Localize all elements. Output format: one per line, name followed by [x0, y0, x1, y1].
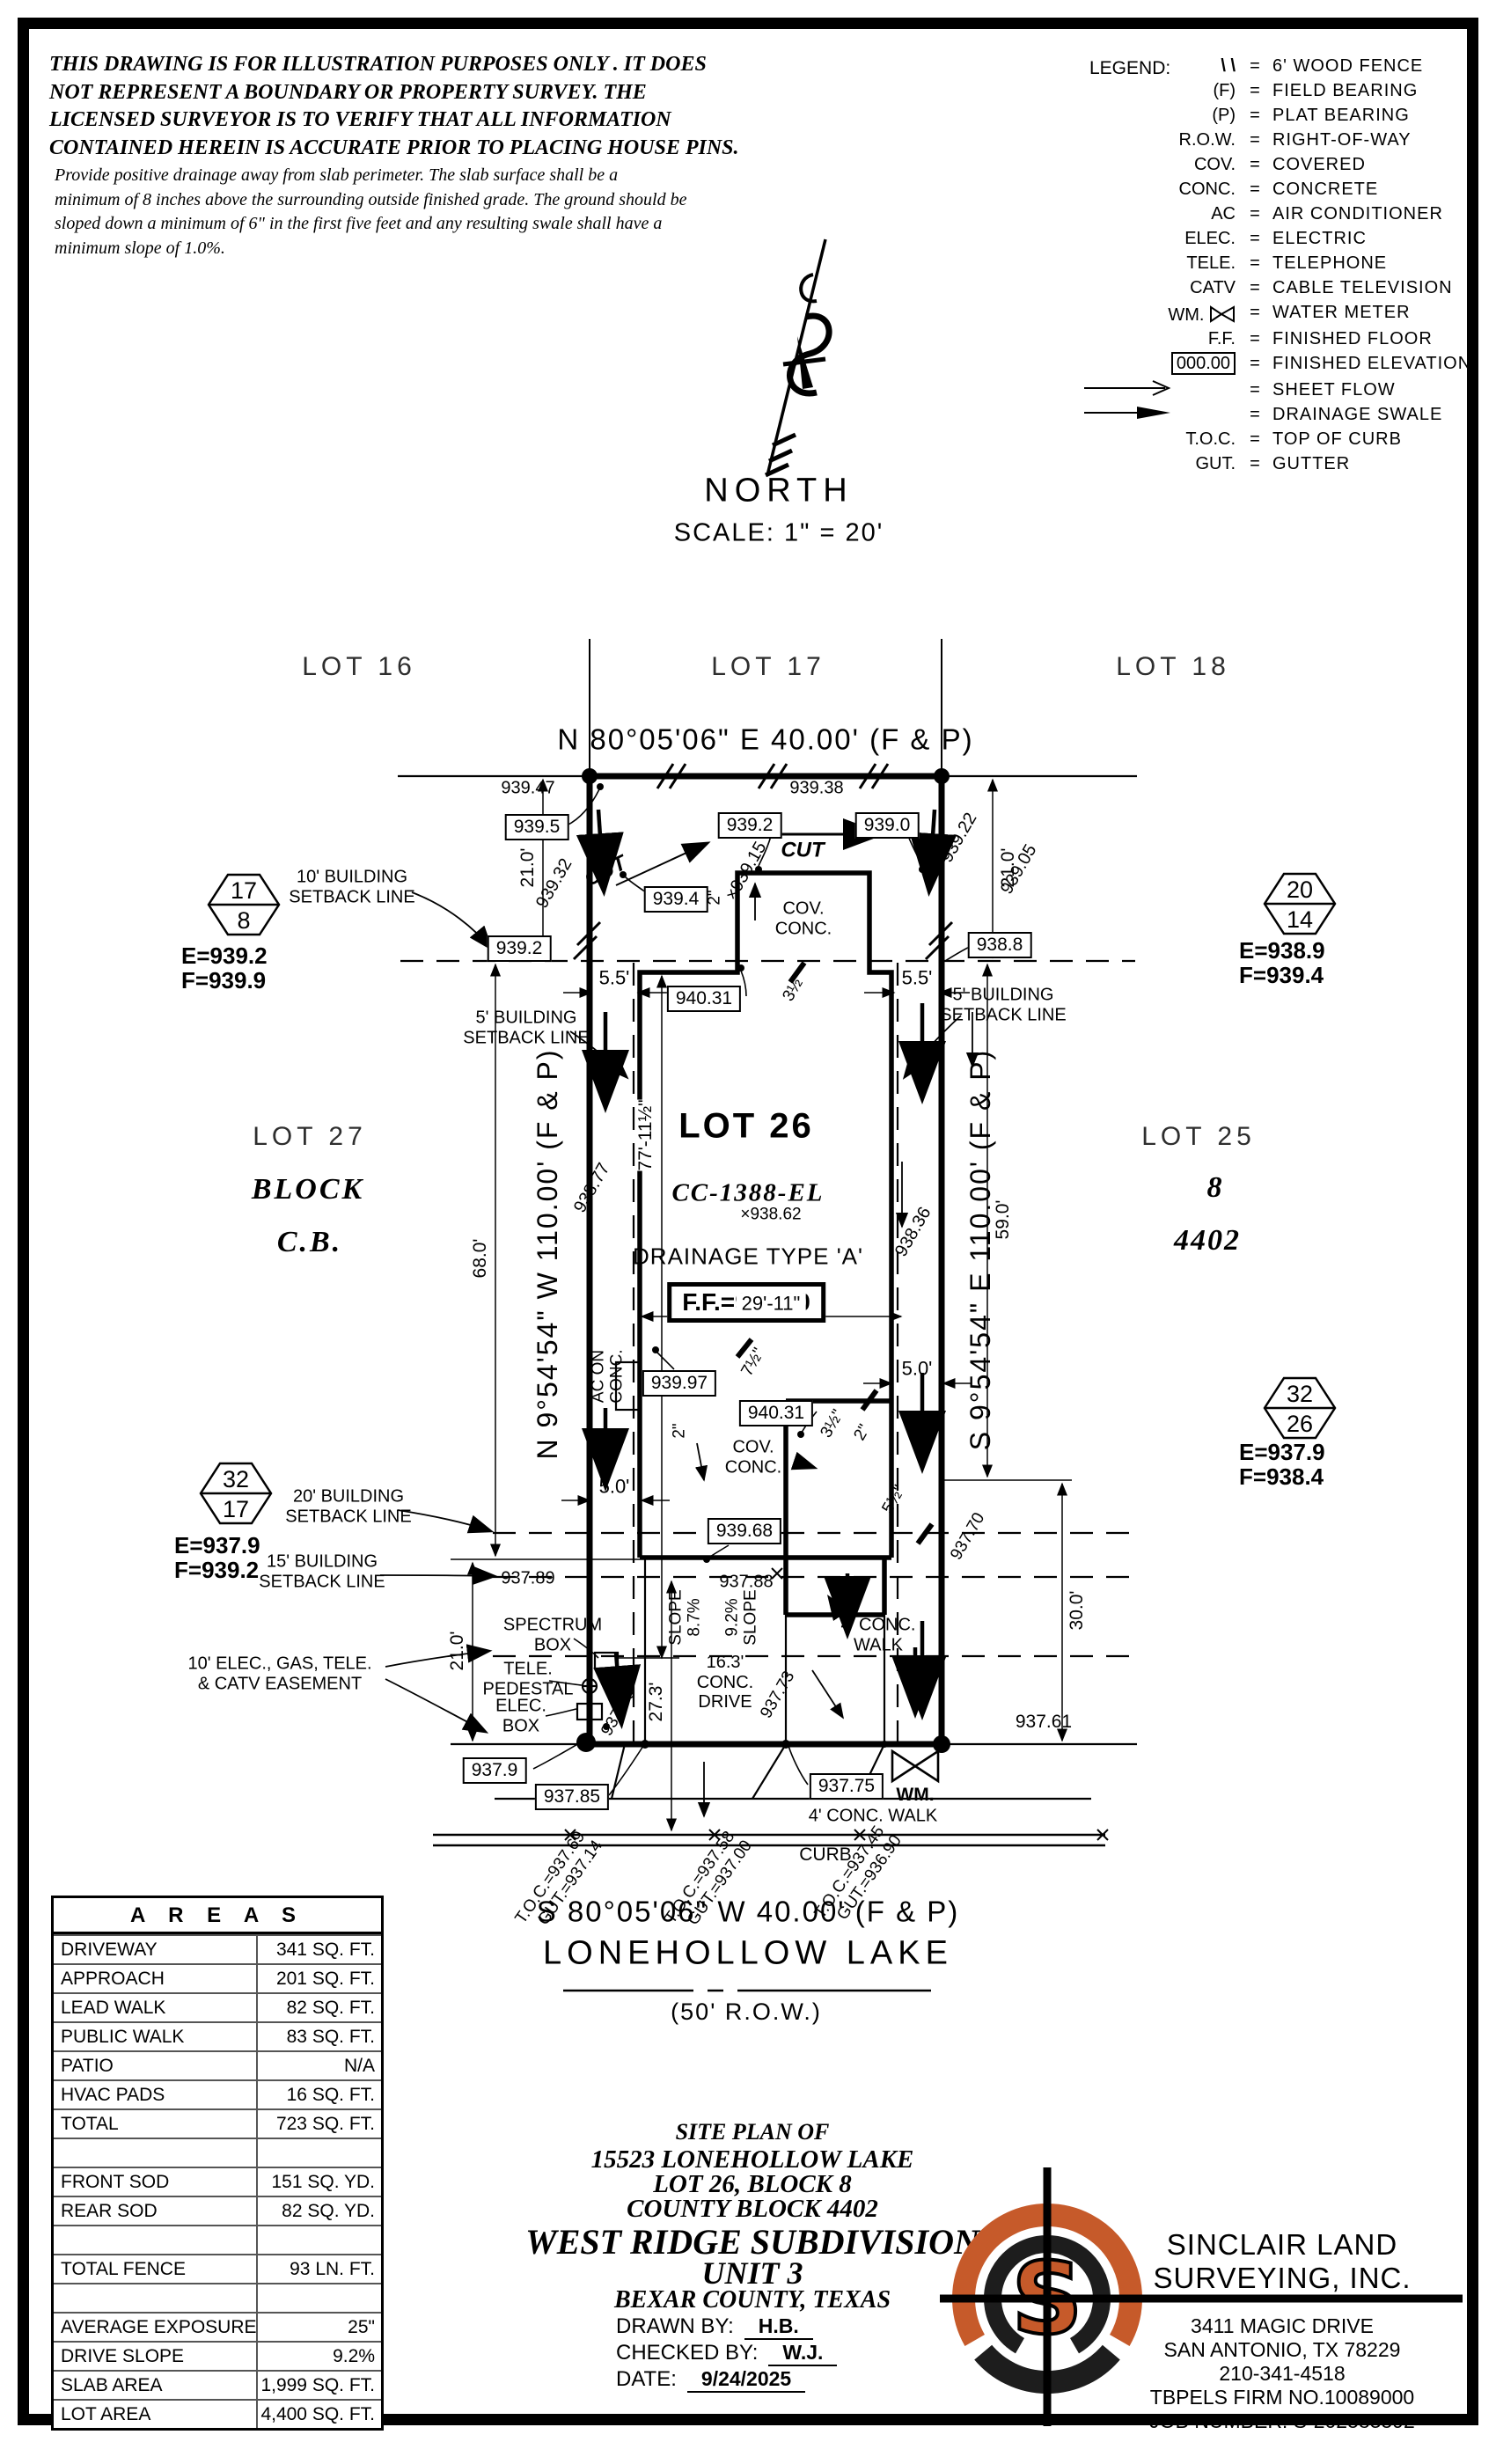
bearing-east: S 9°54'54" E 110.00' (F & P): [964, 1049, 996, 1450]
hex4-f-value: F=938.4: [1239, 1464, 1324, 1490]
table-row: [54, 2225, 381, 2254]
lot-27-label: LOT 27: [253, 1122, 367, 1152]
hex-marker-32-26: 32 26: [1263, 1375, 1337, 1441]
company-address-1: 3411 MAGIC DRIVE: [1128, 2314, 1436, 2338]
company-info: SINCLAIR LAND SURVEYING, INC. 3411 MAGIC…: [1128, 2228, 1436, 2433]
table-row: AVERAGE EXPOSURE25": [54, 2312, 381, 2341]
bearing-north: N 80°05'06" E 40.00' (F & P): [557, 722, 973, 755]
drainage-type-label: DRAINAGE TYPE 'A': [633, 1243, 863, 1269]
title-site-plan-of: SITE PLAN OF: [676, 2119, 830, 2145]
bearing-west: N 9°54'54" W 110.00' (F & P): [532, 1048, 563, 1459]
date-row: DATE:9/24/2025: [616, 2367, 805, 2393]
elec-box-label: ELEC. BOX: [495, 1696, 546, 1735]
table-row: TOTAL723 SQ. FT.: [54, 2108, 381, 2138]
bearing-south: S 80°05'06" W 40.00' (F & P): [537, 1895, 960, 1927]
svg-text:20: 20: [1287, 876, 1313, 903]
dim-5-0-left: 5.0': [599, 1477, 630, 1499]
slope-9-2-label: 9.2% SLOPE: [723, 1589, 761, 1645]
date-value: 9/24/2025: [687, 2367, 805, 2393]
setback-15-label: 15' BUILDING SETBACK LINE: [259, 1551, 385, 1591]
hex4-e-value: E=937.9: [1239, 1440, 1325, 1465]
hex3-e-value: E=937.9: [174, 1533, 260, 1558]
elev-box-940-31-rear: 940.31: [667, 986, 741, 1012]
table-row: REAR SOD82 SQ. YD.: [54, 2196, 381, 2225]
hex2-f-value: F=939.4: [1239, 963, 1324, 988]
table-row: HVAC PADS16 SQ. FT.: [54, 2079, 381, 2108]
elev-box-938-8: 938.8: [968, 932, 1032, 958]
table-row: FRONT SOD151 SQ. YD.: [54, 2167, 381, 2196]
table-row: DRIVE SLOPE9.2%: [54, 2341, 381, 2370]
county-block-4402-label: 4402: [1174, 1224, 1241, 1258]
drawn-by-value: H.B.: [744, 2314, 813, 2340]
spot-938-62: ×938.62: [740, 1205, 801, 1223]
table-row: [54, 2283, 381, 2312]
elev-box-940-31-front: 940.31: [739, 1400, 813, 1426]
table-row: PATION/A: [54, 2050, 381, 2079]
hex1-e-value: E=939.2: [181, 943, 268, 969]
covered-concrete-front: COV. CONC.: [725, 1437, 781, 1477]
table-row: LOT AREA4,400 SQ. FT.: [54, 2399, 381, 2428]
setback-10-label: 10' BUILDING SETBACK LINE: [289, 867, 414, 906]
dim-27-3: 27.3': [646, 1683, 667, 1722]
dim-29-11: 29'-11": [737, 1294, 806, 1316]
elev-box-939-0: 939.0: [855, 812, 920, 839]
row-width-label: (50' R.O.W.): [671, 1998, 822, 2026]
street-name: LONEHOLLOW LAKE: [543, 1935, 953, 1973]
elev-box-939-4: 939.4: [644, 886, 708, 913]
lot-26-label: LOT 26: [678, 1106, 814, 1146]
table-row: LEAD WALK82 SQ. FT.: [54, 1992, 381, 2021]
lot-17-label: LOT 17: [711, 652, 825, 682]
site-plan-page: THIS DRAWING IS FOR ILLUSTRATION PURPOSE…: [0, 0, 1496, 2464]
svg-text:32: 32: [223, 1466, 249, 1492]
table-row: PUBLIC WALK83 SQ. FT.: [54, 2021, 381, 2050]
setback-20-label: 20' BUILDING SETBACK LINE: [285, 1486, 411, 1526]
areas-table-title: A R E A S: [54, 1898, 381, 1934]
setback-5-right-label: 5' BUILDING SETBACK LINE: [940, 985, 1066, 1024]
svg-text:8: 8: [237, 907, 250, 934]
elev-box-939-5: 939.5: [505, 814, 569, 840]
svg-text:26: 26: [1287, 1411, 1313, 1437]
table-row: DRIVEWAY341 SQ. FT.: [54, 1934, 381, 1963]
table-row: SLAB AREA1,999 SQ. FT.: [54, 2370, 381, 2399]
svg-text:17: 17: [231, 877, 257, 904]
dim-5-5-right: 5.5': [902, 968, 933, 990]
table-row: TOTAL FENCE93 LN. FT.: [54, 2254, 381, 2283]
ac-on-conc-label: AC ON CONC.: [590, 1349, 627, 1403]
setback-5-left-label: 5' BUILDING SETBACK LINE: [463, 1008, 589, 1047]
covered-concrete-rear: COV. CONC.: [775, 898, 832, 938]
easement-label: 10' ELEC., GAS, TELE. & CATV EASEMENT: [187, 1654, 371, 1693]
title-county-block: COUNTY BLOCK 4402: [627, 2195, 878, 2224]
table-row: [54, 2138, 381, 2167]
conc-walk-label-upper: 4' CONC. WALK: [841, 1615, 916, 1654]
lot-18-label: LOT 18: [1116, 652, 1230, 682]
cc-number: CC-1388-EL: [671, 1179, 824, 1208]
elev-939-38: 939.38: [789, 779, 843, 799]
table-row: APPROACH201 SQ. FT.: [54, 1963, 381, 1992]
conc-drive-label: 16.3' CONC. DRIVE: [697, 1653, 753, 1712]
dim-30: 30.0': [1067, 1591, 1088, 1631]
title-county-state: BEXAR COUNTY, TEXAS: [614, 2286, 891, 2314]
elev-box-937-9: 937.9: [463, 1757, 527, 1784]
hex-marker-17-8: 17 8: [207, 872, 281, 937]
dim-2-mid: 2": [670, 1423, 688, 1438]
dim-68: 68.0': [470, 1239, 491, 1279]
hex-marker-32-17: 32 17: [199, 1461, 273, 1526]
company-address-2: SAN ANTONIO, TX 78229: [1128, 2338, 1436, 2362]
company-name-1: SINCLAIR LAND: [1128, 2228, 1436, 2262]
hex1-f-value: F=939.9: [181, 968, 266, 994]
elev-937-89: 937.89: [501, 1569, 554, 1589]
svg-text:17: 17: [223, 1496, 249, 1522]
hex-marker-20-14: 20 14: [1263, 871, 1337, 936]
checked-by-row: CHECKED BY:W.J.: [616, 2341, 837, 2366]
dim-5-5-left: 5.5': [599, 968, 630, 990]
company-firm-number: TBPELS FIRM NO.10089000: [1128, 2386, 1436, 2409]
elev-box-939-97: 939.97: [642, 1370, 716, 1397]
elev-box-939-2: 939.2: [718, 812, 782, 839]
tele-pedestal-label: TELE. PEDESTAL: [483, 1659, 574, 1698]
dim-21-top-right: 21.0': [998, 848, 1019, 888]
dim-21-top-left: 21.0': [517, 848, 539, 888]
county-block-label: C.B.: [277, 1226, 342, 1259]
company-phone: 210-341-4518: [1128, 2362, 1436, 2386]
water-meter-symbol: [892, 1751, 938, 1781]
checked-by-value: W.J.: [768, 2341, 837, 2366]
dim-2-rear-porch: 2": [705, 890, 723, 905]
hex2-e-value: E=938.9: [1239, 938, 1325, 964]
hex3-f-value: F=939.2: [174, 1558, 259, 1583]
areas-table: A R E A S DRIVEWAY341 SQ. FT. APPROACH20…: [51, 1896, 384, 2431]
block-label: BLOCK: [252, 1173, 364, 1206]
elev-937-61: 937.61: [1016, 1712, 1072, 1733]
job-number: JOB NUMBER: S-202583592: [1128, 2409, 1436, 2433]
company-name-2: SURVEYING, INC.: [1128, 2262, 1436, 2295]
elev-939-47: 939.47: [501, 779, 554, 799]
water-meter-label: WM.: [896, 1785, 934, 1806]
elev-box-939-68: 939.68: [708, 1518, 781, 1544]
block-8-label: 8: [1207, 1171, 1222, 1205]
elev-box-939-2-left: 939.2: [488, 935, 552, 962]
cut-label-2: CUT: [781, 838, 824, 862]
dim-21-bottom: 21.0': [447, 1632, 468, 1671]
slope-8-7-label: SLOPE 8.7%: [667, 1589, 705, 1645]
spectrum-box-label: SPECTRUM BOX: [503, 1615, 602, 1654]
elev-box-937-75: 937.75: [810, 1773, 884, 1800]
elev-box-937-85: 937.85: [535, 1784, 609, 1810]
lot-16-label: LOT 16: [302, 652, 416, 682]
dim-5-0-right: 5.0': [902, 1359, 933, 1381]
lot-25-label: LOT 25: [1141, 1122, 1256, 1152]
dim-59: 59.0': [993, 1200, 1014, 1240]
svg-text:32: 32: [1287, 1381, 1313, 1407]
svg-text:14: 14: [1287, 906, 1313, 933]
drawn-by-row: DRAWN BY:H.B.: [616, 2314, 813, 2340]
dim-77-11: 77'-11½": [635, 1099, 656, 1170]
